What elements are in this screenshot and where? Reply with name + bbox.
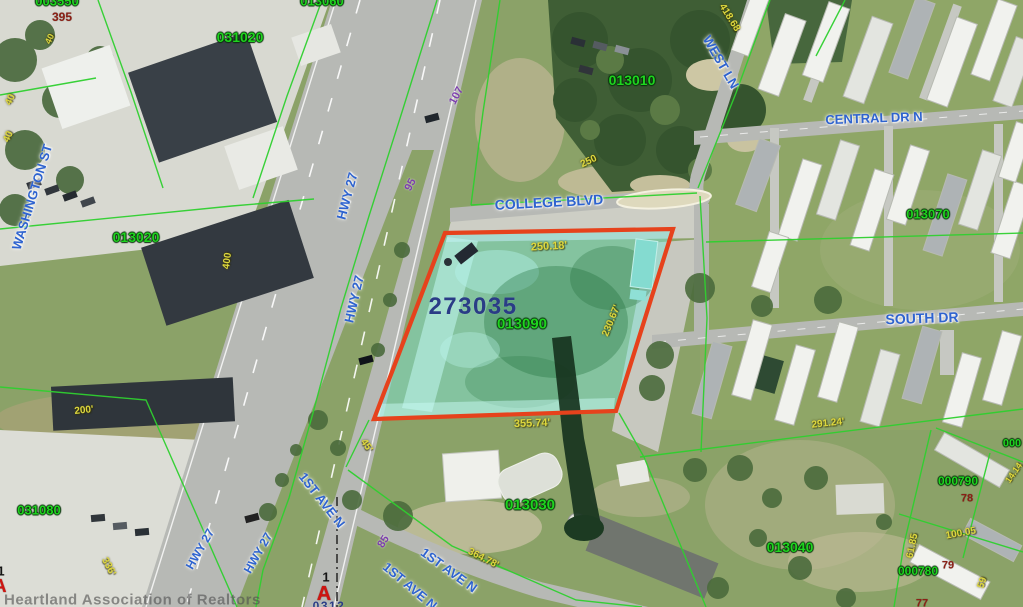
- gis-aerial-map-view: { "map": { "highlight": { "outline_color…: [0, 0, 1023, 607]
- aerial-basemap: [0, 0, 1023, 607]
- map-canvas[interactable]: [0, 0, 1023, 607]
